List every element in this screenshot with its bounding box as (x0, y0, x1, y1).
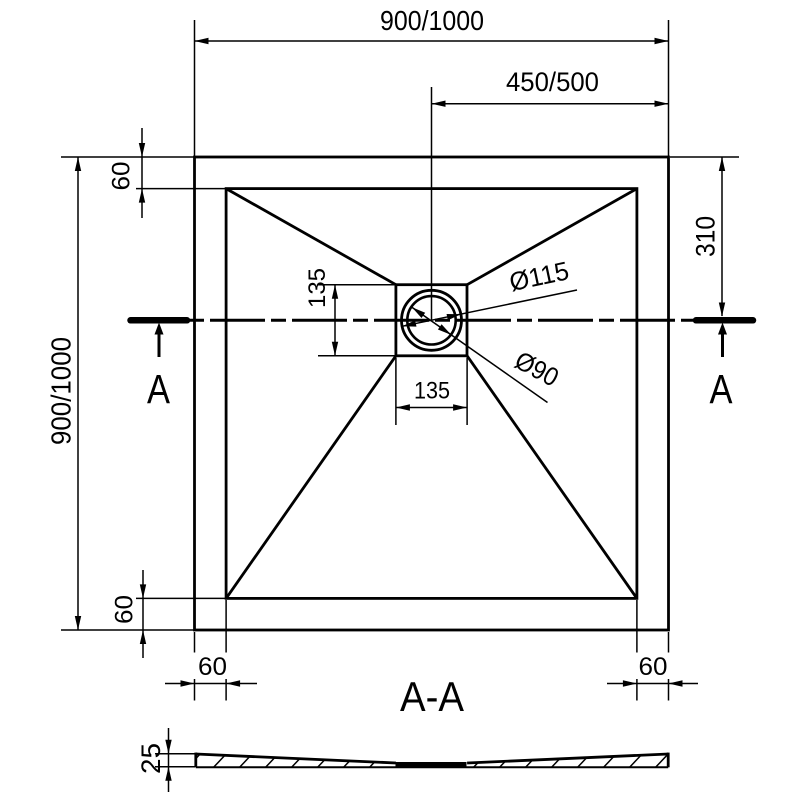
svg-text:Ø90: Ø90 (510, 345, 564, 393)
svg-text:A-A: A-A (400, 673, 464, 720)
svg-text:135: 135 (304, 268, 331, 308)
svg-text:135: 135 (414, 378, 450, 405)
svg-text:900/1000: 900/1000 (45, 337, 76, 445)
svg-text:Ø115: Ø115 (507, 255, 572, 297)
svg-text:A: A (710, 366, 734, 412)
svg-text:450/500: 450/500 (506, 67, 599, 97)
svg-text:900/1000: 900/1000 (380, 5, 484, 36)
svg-text:25: 25 (136, 743, 166, 774)
svg-text:310: 310 (691, 216, 721, 257)
svg-text:A: A (147, 366, 171, 412)
svg-text:60: 60 (107, 162, 135, 191)
svg-text:60: 60 (198, 653, 227, 681)
svg-text:60: 60 (639, 653, 668, 681)
svg-text:60: 60 (110, 595, 138, 624)
